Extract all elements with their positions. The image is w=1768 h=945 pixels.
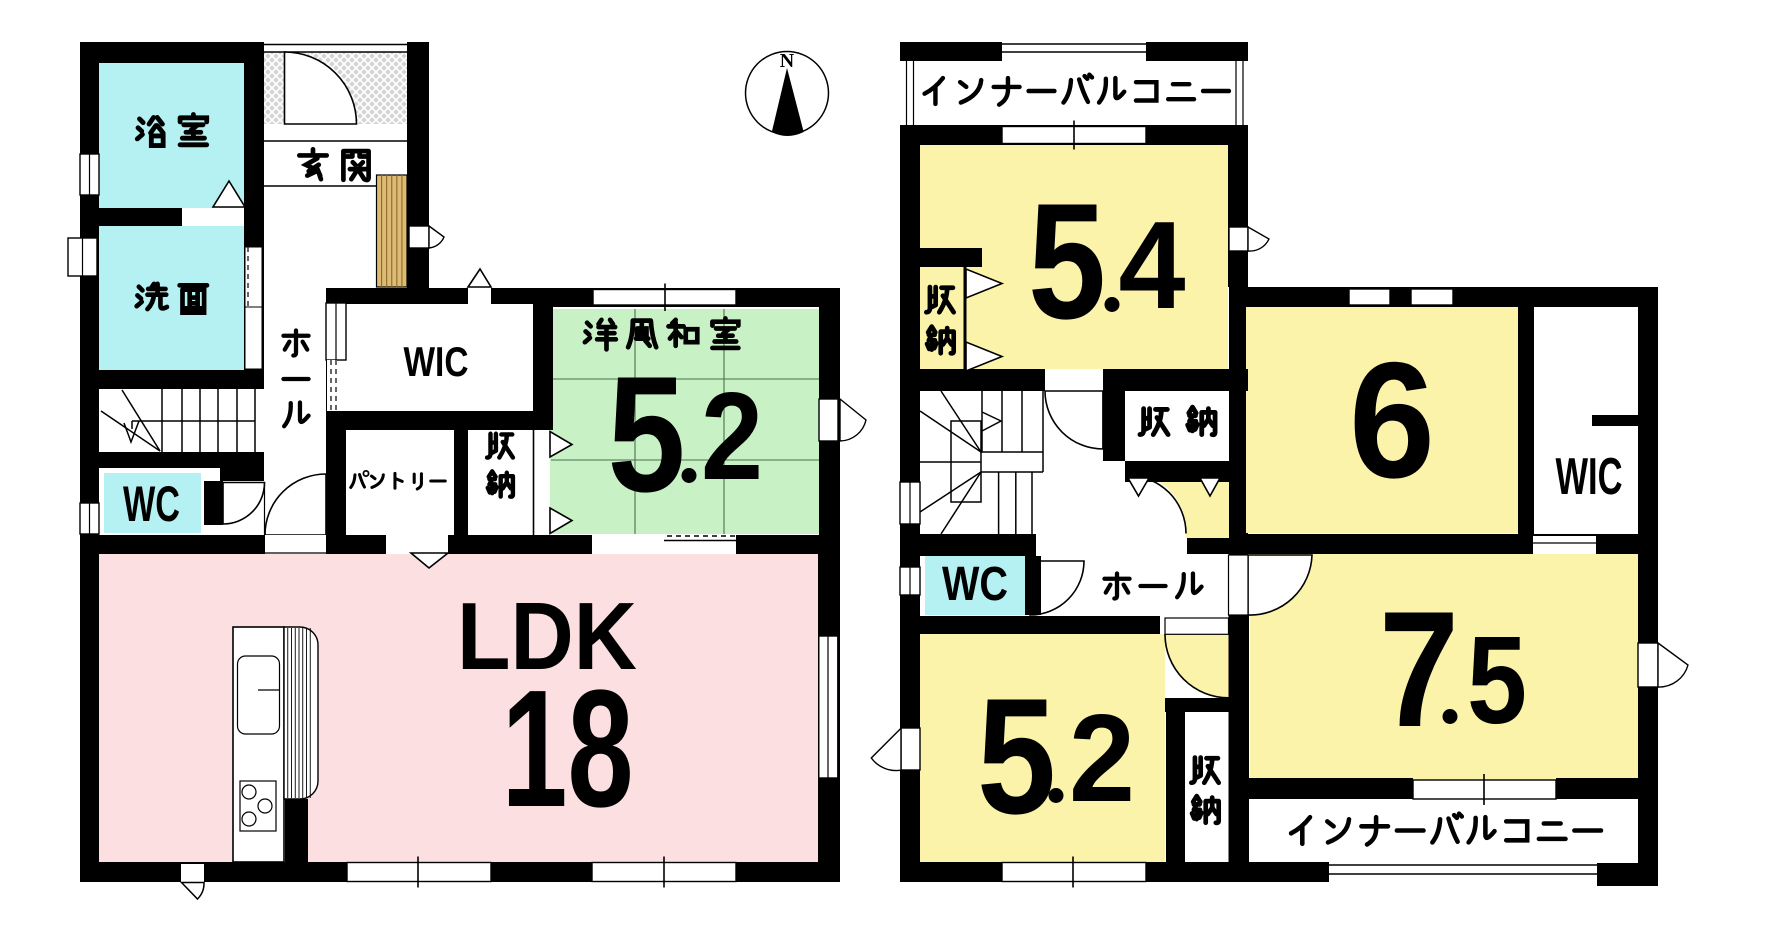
svg-text:7: 7 xyxy=(1379,577,1459,761)
svg-text:5: 5 xyxy=(1467,612,1527,750)
svg-text:WIC: WIC xyxy=(1556,448,1623,506)
svg-text:N: N xyxy=(780,50,795,72)
svg-text:WIC: WIC xyxy=(404,338,469,385)
svg-text:WC: WC xyxy=(942,558,1008,611)
svg-text:18: 18 xyxy=(502,656,634,842)
svg-text:4: 4 xyxy=(1119,197,1186,335)
svg-text:WC: WC xyxy=(123,476,180,532)
svg-text:5: 5 xyxy=(608,342,686,526)
svg-text:2: 2 xyxy=(1069,690,1135,828)
svg-text:2: 2 xyxy=(701,368,763,506)
svg-text:5: 5 xyxy=(977,664,1056,848)
svg-text:5: 5 xyxy=(1028,169,1106,353)
svg-text:6: 6 xyxy=(1349,328,1435,512)
